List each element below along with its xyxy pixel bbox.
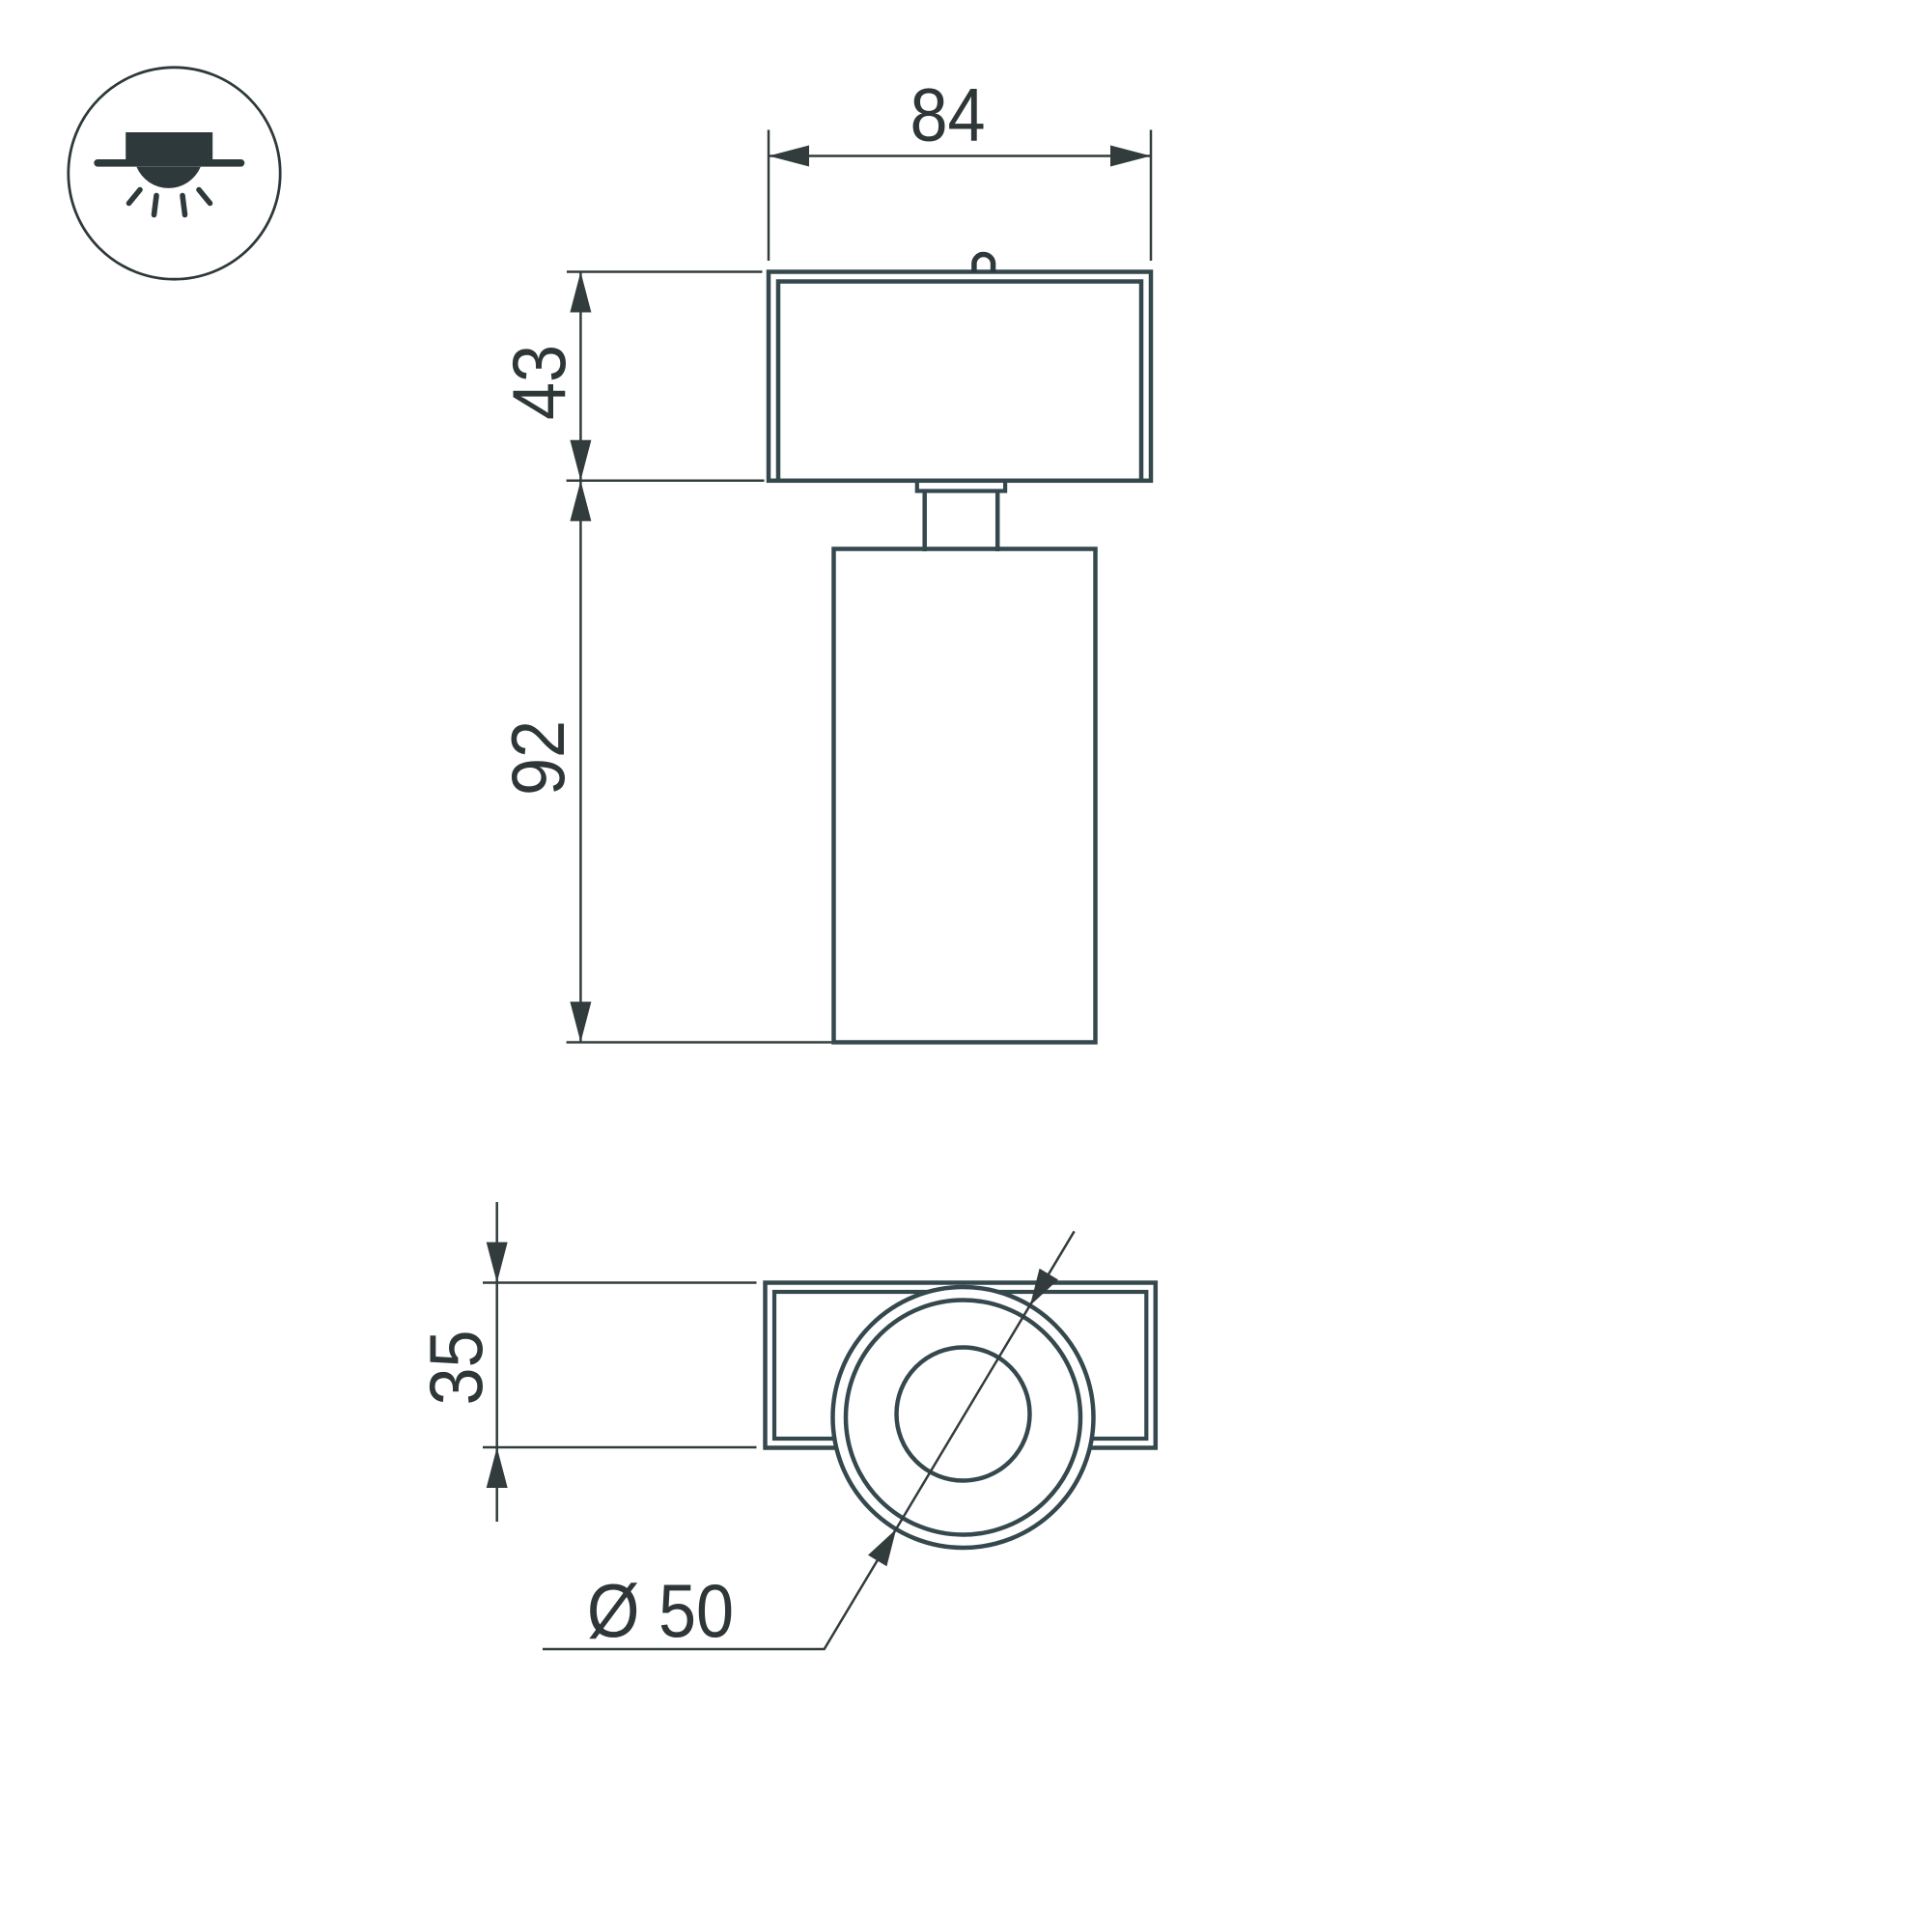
svg-text:84: 84: [910, 72, 985, 156]
svg-text:Ø 50: Ø 50: [587, 1569, 734, 1653]
svg-text:43: 43: [497, 345, 581, 420]
svg-text:92: 92: [496, 720, 580, 796]
svg-text:35: 35: [414, 1330, 498, 1405]
